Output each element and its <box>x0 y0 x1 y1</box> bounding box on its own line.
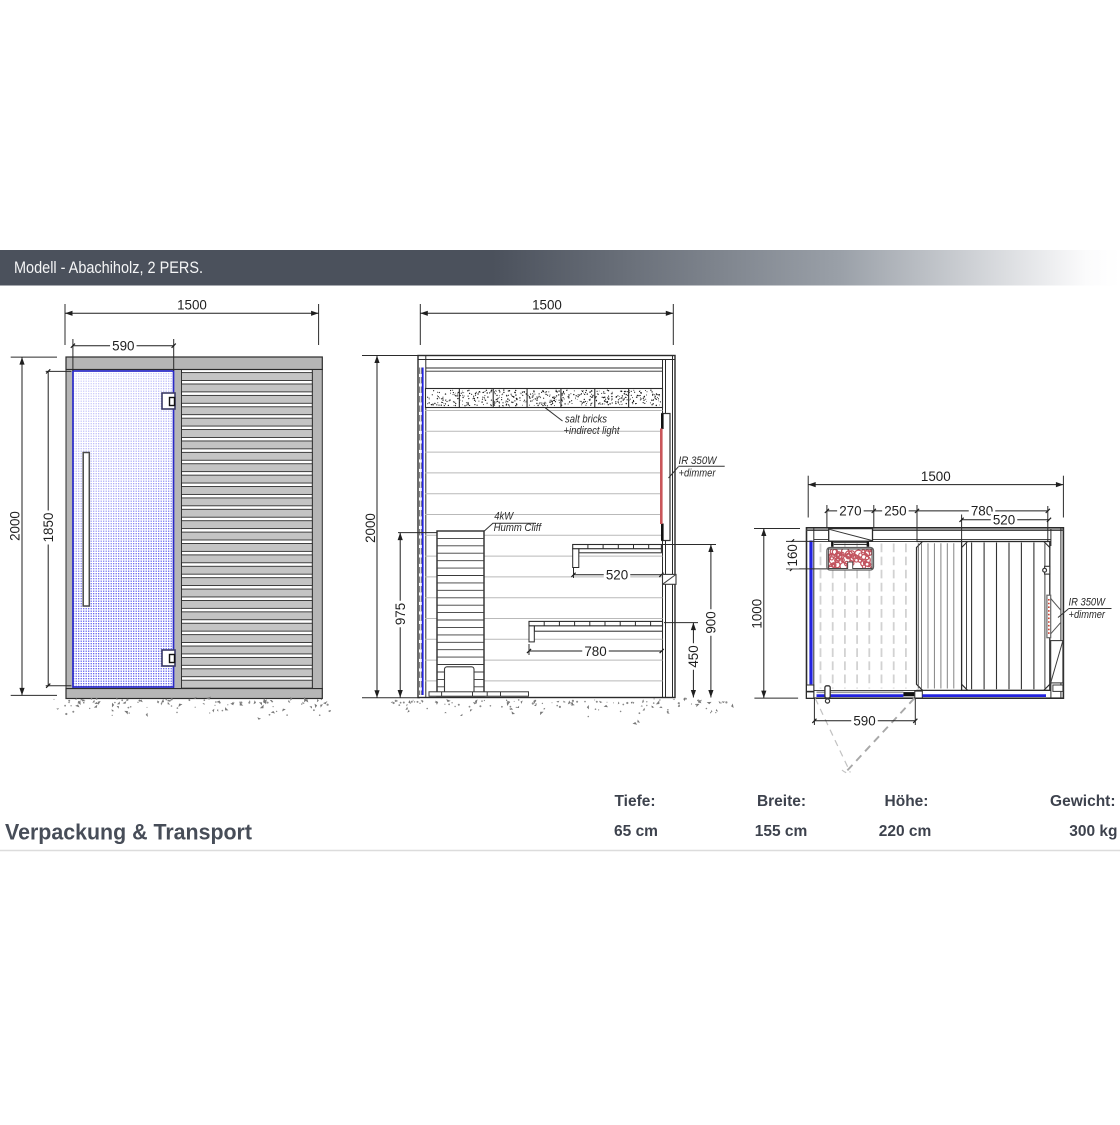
svg-text:2000: 2000 <box>8 511 23 541</box>
svg-text:1500: 1500 <box>532 298 562 313</box>
svg-text:900: 900 <box>704 611 719 633</box>
svg-text:Modell - Abachiholz, 2 PERS.: Modell - Abachiholz, 2 PERS. <box>14 259 203 277</box>
svg-text:590: 590 <box>112 339 134 354</box>
svg-text:520: 520 <box>993 513 1015 528</box>
svg-text:65 cm: 65 cm <box>614 823 658 840</box>
svg-text:+dimmer: +dimmer <box>1069 609 1106 621</box>
svg-text:520: 520 <box>606 568 628 583</box>
svg-text:Gewicht:: Gewicht: <box>1050 793 1115 810</box>
svg-text:1500: 1500 <box>921 469 951 484</box>
svg-text:4kW: 4kW <box>494 510 515 522</box>
svg-text:780: 780 <box>584 644 606 659</box>
svg-text:Tiefe:: Tiefe: <box>614 793 655 810</box>
svg-text:+dimmer: +dimmer <box>679 468 716 480</box>
svg-text:Verpackung & Transport: Verpackung & Transport <box>5 820 252 845</box>
svg-text:450: 450 <box>686 645 701 667</box>
svg-text:1850: 1850 <box>41 513 56 543</box>
svg-text:+indirect light: +indirect light <box>564 425 621 437</box>
svg-text:1000: 1000 <box>749 599 764 629</box>
svg-text:1500: 1500 <box>177 298 207 313</box>
svg-text:160: 160 <box>785 544 800 566</box>
svg-text:250: 250 <box>884 504 906 519</box>
svg-text:780: 780 <box>971 504 993 519</box>
svg-text:220 cm: 220 cm <box>879 823 932 840</box>
svg-text:IR 350W: IR 350W <box>1069 597 1107 609</box>
svg-text:Breite:: Breite: <box>757 793 806 810</box>
svg-text:Humm Cliff: Humm Cliff <box>494 522 542 534</box>
svg-text:2000: 2000 <box>363 513 378 543</box>
svg-text:270: 270 <box>839 504 861 519</box>
svg-text:590: 590 <box>853 714 875 729</box>
svg-text:300 kg: 300 kg <box>1069 823 1117 840</box>
svg-text:salt bricks: salt bricks <box>565 414 608 426</box>
svg-text:155 cm: 155 cm <box>755 823 808 840</box>
svg-text:IR 350W: IR 350W <box>679 455 719 467</box>
svg-text:975: 975 <box>393 603 408 625</box>
svg-text:Höhe:: Höhe: <box>885 793 929 810</box>
